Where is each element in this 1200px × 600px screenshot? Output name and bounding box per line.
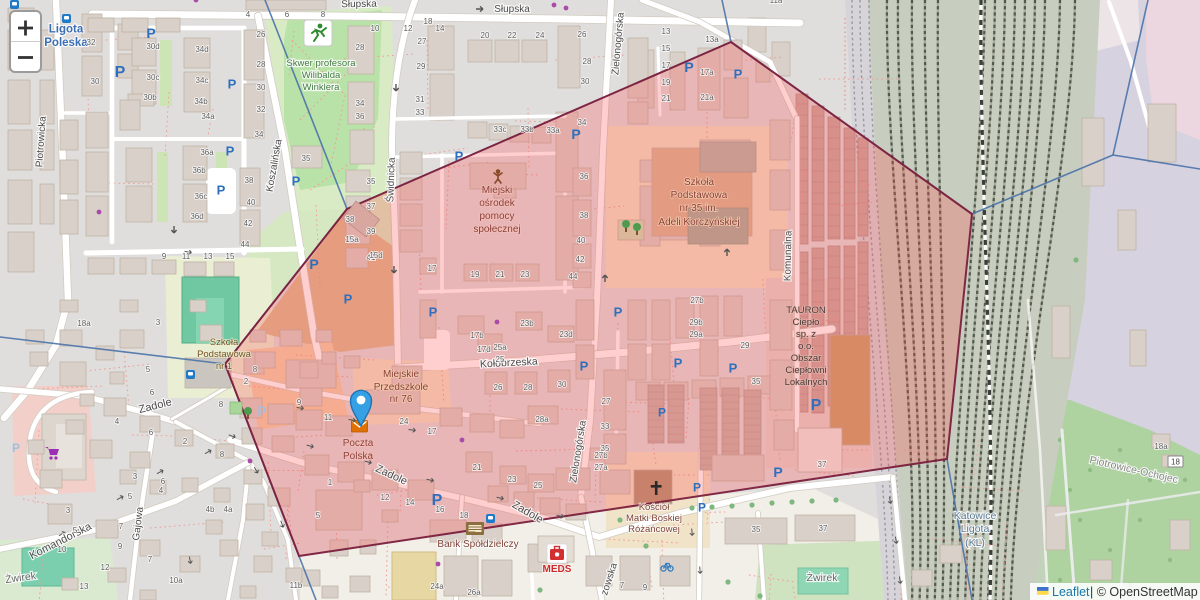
svg-text:Podstawowa: Podstawowa — [197, 349, 252, 360]
svg-text:P: P — [658, 405, 666, 419]
svg-text:33c: 33c — [494, 125, 507, 134]
svg-text:14: 14 — [436, 24, 445, 33]
svg-text:36: 36 — [580, 172, 589, 181]
svg-text:34b: 34b — [194, 97, 208, 106]
svg-text:36b: 36b — [192, 166, 206, 175]
svg-text:Szkoła: Szkoła — [210, 337, 239, 348]
svg-text:8: 8 — [321, 10, 326, 19]
svg-text:Przedszkole: Przedszkole — [374, 382, 429, 393]
svg-text:P: P — [12, 441, 20, 455]
svg-text:8: 8 — [253, 365, 258, 374]
svg-text:40: 40 — [577, 236, 586, 245]
svg-text:Poleska: Poleska — [44, 37, 88, 49]
svg-text:37: 37 — [818, 460, 827, 469]
svg-text:9: 9 — [297, 398, 302, 407]
svg-text:nr 35 im.: nr 35 im. — [680, 203, 719, 214]
svg-text:19: 19 — [662, 78, 671, 87]
svg-text:30: 30 — [558, 380, 567, 389]
svg-text:Katowice: Katowice — [954, 510, 997, 522]
svg-text:44: 44 — [569, 272, 578, 281]
svg-text:4b: 4b — [206, 505, 215, 514]
svg-text:18: 18 — [1171, 458, 1180, 467]
svg-text:P: P — [773, 464, 782, 480]
svg-text:18a: 18a — [1154, 442, 1168, 451]
svg-text:26a: 26a — [467, 588, 481, 597]
svg-text:6: 6 — [285, 10, 290, 19]
svg-text:12: 12 — [101, 563, 110, 572]
svg-text:P: P — [674, 356, 683, 371]
svg-text:17: 17 — [428, 427, 437, 436]
svg-text:37: 37 — [367, 202, 376, 211]
svg-text:Ligota: Ligota — [961, 523, 990, 535]
svg-text:Słupska: Słupska — [341, 0, 377, 10]
svg-text:34c: 34c — [196, 76, 209, 85]
svg-text:18: 18 — [424, 17, 433, 26]
svg-text:nr 76: nr 76 — [390, 394, 413, 405]
svg-text:8: 8 — [220, 450, 225, 459]
svg-text:Polska: Polska — [343, 451, 373, 462]
svg-text:22: 22 — [508, 31, 517, 40]
svg-text:11: 11 — [324, 413, 333, 422]
svg-text:11a: 11a — [770, 0, 783, 5]
svg-text:P: P — [729, 361, 738, 376]
svg-text:14: 14 — [406, 498, 415, 507]
svg-text:20: 20 — [481, 31, 490, 40]
svg-text:P: P — [455, 149, 464, 164]
svg-text:Kościół: Kościół — [639, 502, 671, 513]
svg-text:44: 44 — [241, 240, 250, 249]
svg-text:Skwer profesora: Skwer profesora — [286, 58, 356, 69]
svg-text:25: 25 — [534, 481, 543, 490]
svg-text:21: 21 — [496, 270, 505, 279]
svg-text:28a: 28a — [535, 415, 549, 424]
svg-text:36d: 36d — [190, 212, 203, 221]
svg-text:17d: 17d — [477, 345, 490, 354]
svg-text:29: 29 — [417, 62, 426, 71]
svg-text:26: 26 — [578, 30, 587, 39]
svg-text:34: 34 — [356, 99, 365, 108]
svg-text:13: 13 — [80, 582, 89, 591]
svg-text:Lokalnych: Lokalnych — [785, 377, 828, 388]
svg-text:38: 38 — [580, 211, 589, 220]
svg-text:o.o.: o.o. — [798, 341, 814, 352]
svg-text:P: P — [257, 403, 266, 419]
svg-text:21: 21 — [473, 463, 482, 472]
svg-text:Adeli Korczyńskiej: Adeli Korczyńskiej — [658, 217, 739, 228]
svg-text:Komunalna: Komunalna — [783, 230, 795, 281]
svg-text:Szkoła: Szkoła — [684, 177, 714, 188]
svg-text:12: 12 — [381, 493, 390, 502]
svg-text:MEDS: MEDS — [543, 564, 572, 575]
svg-text:3: 3 — [156, 318, 161, 327]
svg-text:Ciepłowni: Ciepłowni — [785, 365, 826, 376]
svg-text:37: 37 — [819, 524, 828, 533]
svg-text:31: 31 — [416, 95, 425, 104]
svg-text:29b: 29b — [689, 318, 703, 327]
svg-text:36c: 36c — [195, 192, 208, 201]
svg-text:28: 28 — [356, 43, 365, 52]
svg-text:18a: 18a — [77, 319, 91, 328]
svg-text:2: 2 — [244, 377, 249, 386]
svg-text:28: 28 — [524, 383, 533, 392]
svg-text:P: P — [292, 174, 301, 189]
svg-text:23: 23 — [521, 270, 530, 279]
svg-text:3: 3 — [66, 506, 71, 515]
svg-text:10: 10 — [371, 24, 380, 33]
svg-text:11: 11 — [182, 252, 191, 261]
svg-text:P: P — [571, 126, 580, 142]
svg-text:18: 18 — [460, 511, 469, 520]
svg-text:4: 4 — [115, 417, 120, 426]
svg-text:7: 7 — [119, 522, 124, 531]
svg-text:15d: 15d — [369, 251, 382, 260]
svg-text:nr 1: nr 1 — [216, 361, 232, 372]
svg-text:26: 26 — [257, 30, 266, 39]
svg-text:6: 6 — [149, 428, 154, 437]
svg-text:21: 21 — [662, 94, 671, 103]
svg-text:32: 32 — [257, 105, 266, 114]
svg-text:30: 30 — [91, 77, 100, 86]
svg-text:30d: 30d — [146, 42, 159, 51]
svg-text:25: 25 — [496, 355, 505, 364]
svg-text:4a: 4a — [224, 505, 233, 514]
svg-text:27a: 27a — [594, 463, 608, 472]
svg-text:5: 5 — [128, 492, 133, 501]
svg-text:38: 38 — [245, 176, 254, 185]
svg-text:Różańcowej: Różańcowej — [628, 524, 680, 535]
svg-text:23d: 23d — [559, 330, 572, 339]
svg-text:33: 33 — [601, 422, 610, 431]
svg-text:P: P — [146, 25, 155, 41]
svg-text:Obszar: Obszar — [791, 353, 822, 364]
svg-text:27: 27 — [418, 37, 427, 46]
svg-text:17: 17 — [428, 264, 437, 273]
svg-text:38: 38 — [346, 215, 355, 224]
svg-text:Leaflet: Leaflet — [1052, 585, 1090, 599]
svg-text:33b: 33b — [520, 125, 534, 134]
svg-text:9: 9 — [162, 252, 167, 261]
svg-text:29: 29 — [741, 341, 750, 350]
svg-text:Miejski: Miejski — [482, 185, 513, 196]
svg-text:P: P — [429, 305, 438, 320]
svg-text:4: 4 — [159, 486, 164, 495]
svg-text:13: 13 — [204, 252, 213, 261]
svg-text:1: 1 — [328, 478, 333, 487]
svg-text:30b: 30b — [143, 93, 157, 102]
svg-text:15a: 15a — [345, 235, 359, 244]
svg-text:24: 24 — [400, 417, 409, 426]
svg-text:P: P — [734, 67, 743, 82]
svg-text:10: 10 — [58, 545, 67, 554]
svg-text:33: 33 — [416, 108, 425, 117]
svg-text:P: P — [693, 480, 701, 494]
svg-text:35: 35 — [752, 377, 761, 386]
svg-text:Słupska: Słupska — [494, 4, 530, 15]
svg-text:33a: 33a — [546, 126, 560, 135]
svg-text:24: 24 — [536, 31, 545, 40]
svg-text:23: 23 — [508, 475, 517, 484]
svg-text:17a: 17a — [700, 68, 714, 77]
svg-text:5: 5 — [316, 511, 321, 520]
svg-text:P: P — [309, 256, 318, 272]
svg-text:| © OpenStreetMap: | © OpenStreetMap — [1090, 585, 1198, 599]
svg-text:21a: 21a — [700, 93, 714, 102]
svg-text:Winklera: Winklera — [303, 82, 341, 93]
svg-text:40: 40 — [247, 198, 256, 207]
svg-text:P: P — [811, 397, 822, 414]
svg-text:P: P — [698, 500, 706, 514]
svg-text:Wilibalda: Wilibalda — [302, 70, 341, 81]
svg-text:7: 7 — [148, 555, 153, 564]
svg-text:28: 28 — [583, 57, 592, 66]
svg-text:5: 5 — [146, 365, 151, 374]
svg-text:Miejskie: Miejskie — [383, 369, 420, 380]
svg-text:(KL): (KL) — [965, 537, 985, 549]
svg-text:6: 6 — [161, 477, 166, 486]
svg-text:13a: 13a — [705, 35, 719, 44]
svg-text:12: 12 — [404, 24, 413, 33]
svg-text:32: 32 — [87, 38, 96, 47]
svg-text:10a: 10a — [169, 576, 183, 585]
svg-text:30: 30 — [257, 83, 266, 92]
svg-text:Ciepło: Ciepło — [793, 317, 820, 328]
svg-text:P: P — [115, 64, 126, 81]
svg-text:16: 16 — [436, 505, 445, 514]
svg-text:30: 30 — [581, 77, 590, 86]
svg-text:Bank Spółdzielczy: Bank Spółdzielczy — [437, 539, 518, 550]
svg-text:8: 8 — [219, 400, 224, 409]
svg-text:17: 17 — [662, 61, 671, 70]
svg-text:35: 35 — [752, 525, 761, 534]
svg-text:27b: 27b — [594, 451, 608, 460]
svg-text:34: 34 — [255, 130, 264, 139]
svg-text:25a: 25a — [493, 343, 507, 352]
svg-text:Poczta: Poczta — [343, 438, 374, 449]
svg-text:35: 35 — [367, 177, 376, 186]
svg-text:35: 35 — [302, 154, 311, 163]
svg-text:13: 13 — [662, 27, 671, 36]
svg-text:Podstawowa: Podstawowa — [671, 190, 728, 201]
svg-text:17b: 17b — [470, 331, 484, 340]
svg-text:P: P — [228, 77, 237, 92]
svg-text:34d: 34d — [195, 45, 208, 54]
svg-text:27b: 27b — [690, 296, 704, 305]
svg-text:pomocy: pomocy — [479, 211, 514, 222]
svg-text:TAURON: TAURON — [786, 305, 826, 316]
svg-text:11b: 11b — [290, 581, 303, 590]
svg-text:2: 2 — [183, 437, 188, 446]
svg-text:Żwirek: Żwirek — [807, 571, 839, 584]
svg-text:Ligota: Ligota — [49, 24, 84, 36]
svg-text:9: 9 — [118, 542, 123, 551]
svg-text:15: 15 — [662, 44, 671, 53]
svg-text:42: 42 — [576, 255, 585, 264]
svg-text:P: P — [344, 292, 353, 307]
svg-text:P: P — [226, 144, 235, 159]
svg-text:26: 26 — [494, 383, 503, 392]
svg-text:23b: 23b — [520, 319, 534, 328]
svg-text:P: P — [217, 183, 226, 198]
svg-text:Matki Boskiej: Matki Boskiej — [626, 513, 682, 524]
svg-text:społecznej: społecznej — [473, 224, 520, 235]
svg-text:19: 19 — [471, 270, 480, 279]
svg-text:ośrodek: ośrodek — [479, 198, 516, 209]
svg-text:36: 36 — [356, 112, 365, 121]
svg-text:28: 28 — [257, 60, 266, 69]
svg-text:sp. z: sp. z — [796, 329, 816, 340]
svg-text:4: 4 — [246, 10, 251, 19]
svg-text:39: 39 — [367, 227, 376, 236]
svg-text:27: 27 — [602, 397, 611, 406]
svg-text:9: 9 — [643, 583, 648, 592]
svg-text:P: P — [580, 359, 589, 374]
svg-text:34: 34 — [578, 118, 587, 127]
svg-text:P: P — [684, 59, 693, 75]
svg-text:30c: 30c — [147, 73, 160, 82]
svg-text:P: P — [614, 305, 623, 320]
svg-text:5: 5 — [73, 526, 78, 535]
svg-text:29a: 29a — [689, 330, 703, 339]
svg-text:24a: 24a — [430, 582, 444, 591]
svg-text:34a: 34a — [201, 112, 215, 121]
svg-text:15: 15 — [226, 252, 235, 261]
svg-text:3: 3 — [133, 472, 138, 481]
svg-text:42: 42 — [244, 219, 253, 228]
svg-text:36a: 36a — [200, 148, 214, 157]
svg-text:6: 6 — [150, 388, 155, 397]
svg-text:7: 7 — [620, 581, 625, 590]
